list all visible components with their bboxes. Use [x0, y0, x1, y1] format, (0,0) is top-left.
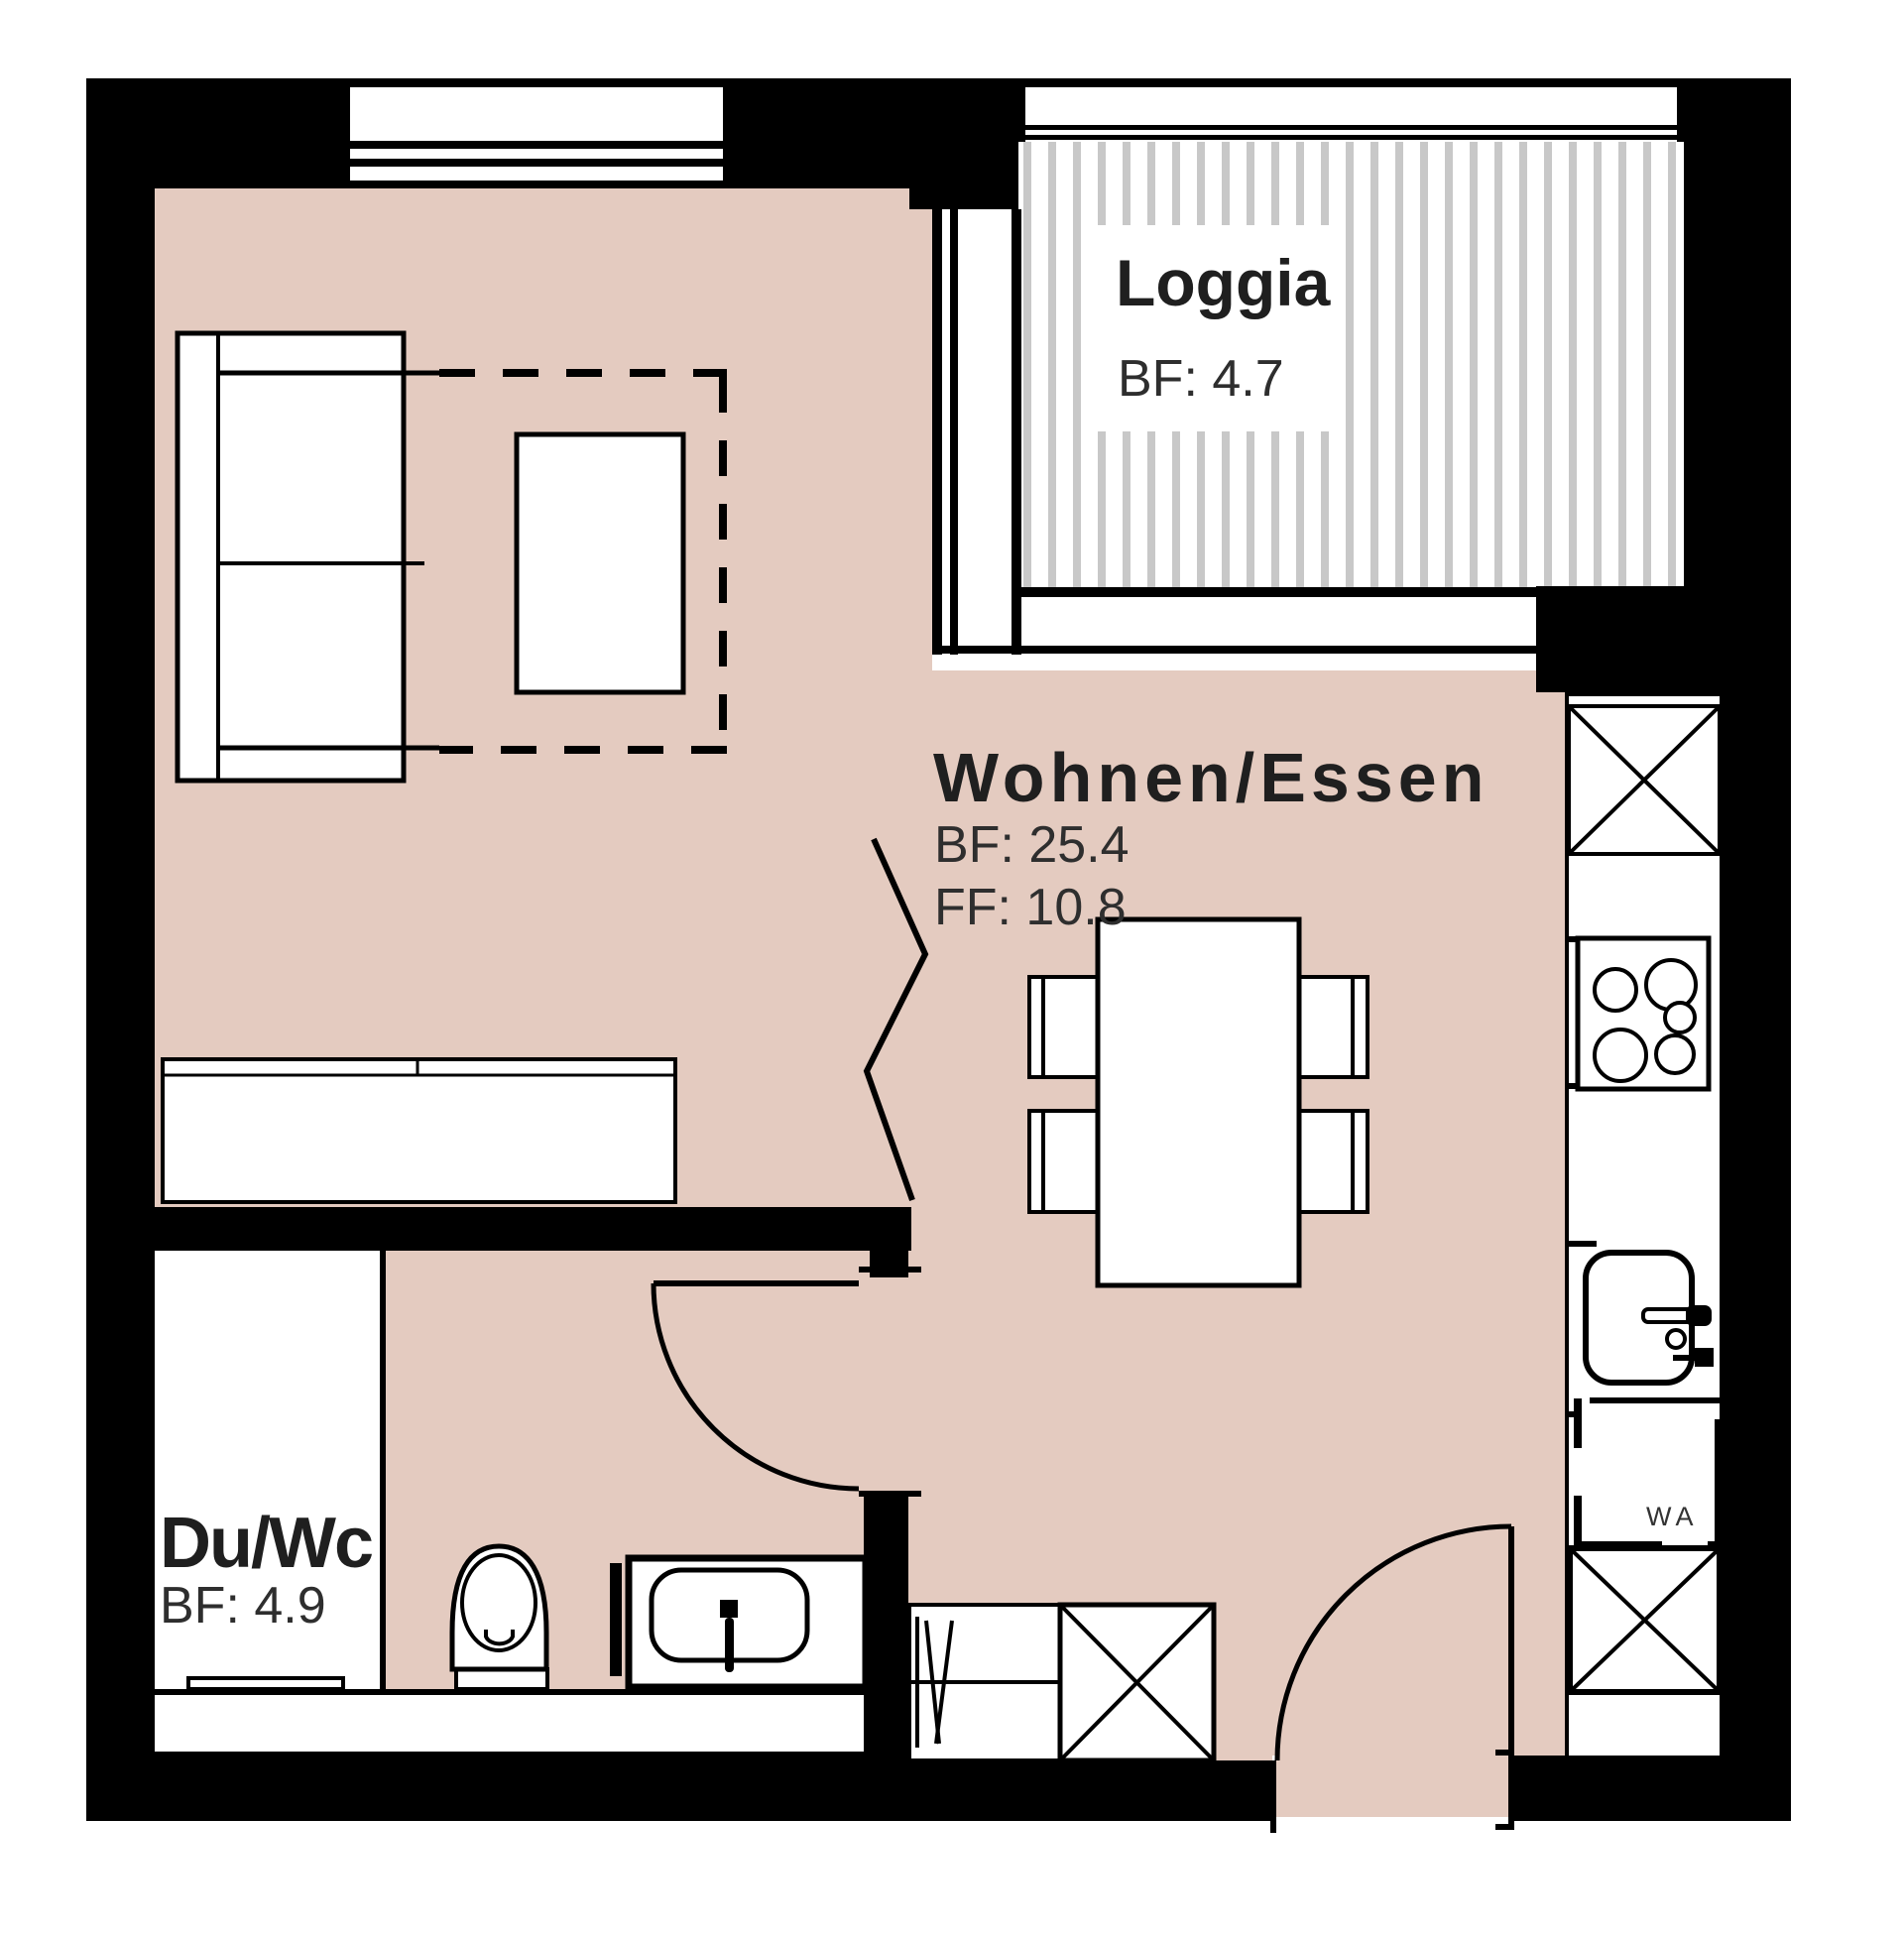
svg-text:BF: 25.4: BF: 25.4 [934, 816, 1130, 874]
svg-text:BF: 4.7: BF: 4.7 [1118, 350, 1284, 408]
svg-text:WA: WA [1646, 1502, 1699, 1531]
svg-text:FF: 10.8: FF: 10.8 [934, 879, 1127, 936]
svg-text:Wohnen/Essen: Wohnen/Essen [933, 739, 1488, 816]
svg-text:Loggia: Loggia [1116, 246, 1332, 319]
svg-text:BF: 4.9: BF: 4.9 [160, 1577, 326, 1635]
svg-text:Du/Wc: Du/Wc [160, 1504, 372, 1583]
